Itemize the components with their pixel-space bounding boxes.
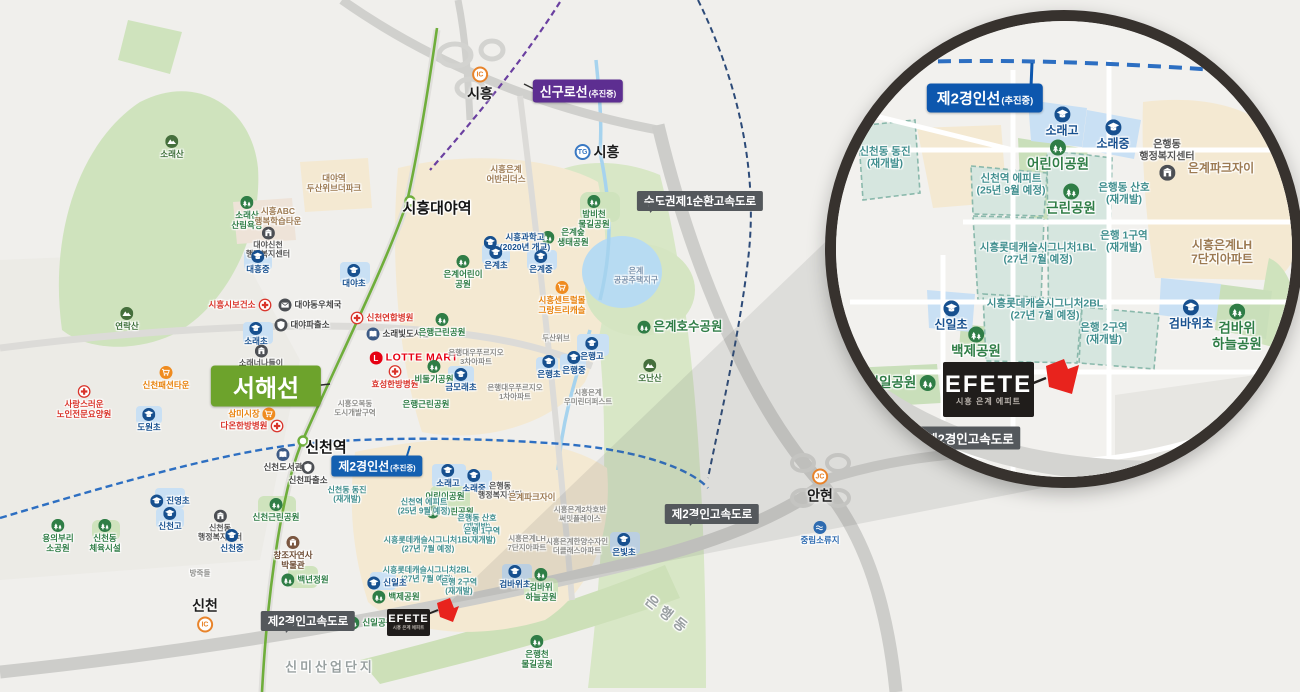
route-badge: 제2경인고속도로 xyxy=(665,504,759,524)
route-badge-text: 제2경인선 xyxy=(937,88,1001,109)
route-badge: 제2경인고속도로 xyxy=(261,611,355,631)
route-badge: 제2경인고속도로 xyxy=(919,427,1020,450)
route-badge: 제2경인선(추진중) xyxy=(927,84,1043,113)
route-badge-text: 서해선 xyxy=(233,369,299,404)
route-badge: 서해선 xyxy=(211,366,321,407)
efete-subtitle: 시흥 은계 에피트 xyxy=(393,626,424,631)
route-badge-status: (추진중) xyxy=(390,463,415,474)
efete-logo: EFETE xyxy=(945,373,1032,397)
route-badge: 제2경인선(추진중) xyxy=(331,456,422,477)
efete-logo-box: EFETE 시흥 은계 에피트 xyxy=(943,362,1034,417)
efete-subtitle: 시흥 은계 에피트 xyxy=(956,398,1021,406)
route-badge-text: 신구로선 xyxy=(540,82,588,101)
location-map: 소래산소래산 산림욕장시흥ABC 행복학습타운대야신천 행정복지센터대야역 두산… xyxy=(0,0,1300,692)
route-badge: 신구로선(추진중) xyxy=(533,80,623,103)
route-badge-text: 제2경인고속도로 xyxy=(268,613,348,629)
inset-badges: 제2경인선(추진중)제2경인고속도로 xyxy=(825,10,1300,488)
route-badge-status: (추진중) xyxy=(1001,93,1033,107)
route-badge-text: 제2경인고속도로 xyxy=(672,506,752,522)
magnifier-inset-content: 소래고소래중어린이공원은행동 행정복지센터은계파크자이신천동 동진 (재개발)신… xyxy=(825,10,1300,488)
route-badge-text: 제2경인선 xyxy=(338,458,389,475)
magnifier-inset: 소래고소래중어린이공원은행동 행정복지센터은계파크자이신천동 동진 (재개발)신… xyxy=(825,10,1300,488)
efete-logo-box: EFETE 시흥 은계 에피트 xyxy=(387,609,430,636)
efete-logo: EFETE xyxy=(388,614,428,625)
route-badge-text: 제2경인고속도로 xyxy=(926,429,1013,448)
route-badge: 수도권제1순환고속도로 xyxy=(637,191,763,211)
route-badge-text: 수도권제1순환고속도로 xyxy=(644,193,756,209)
route-badge-status: (추진중) xyxy=(589,89,617,100)
